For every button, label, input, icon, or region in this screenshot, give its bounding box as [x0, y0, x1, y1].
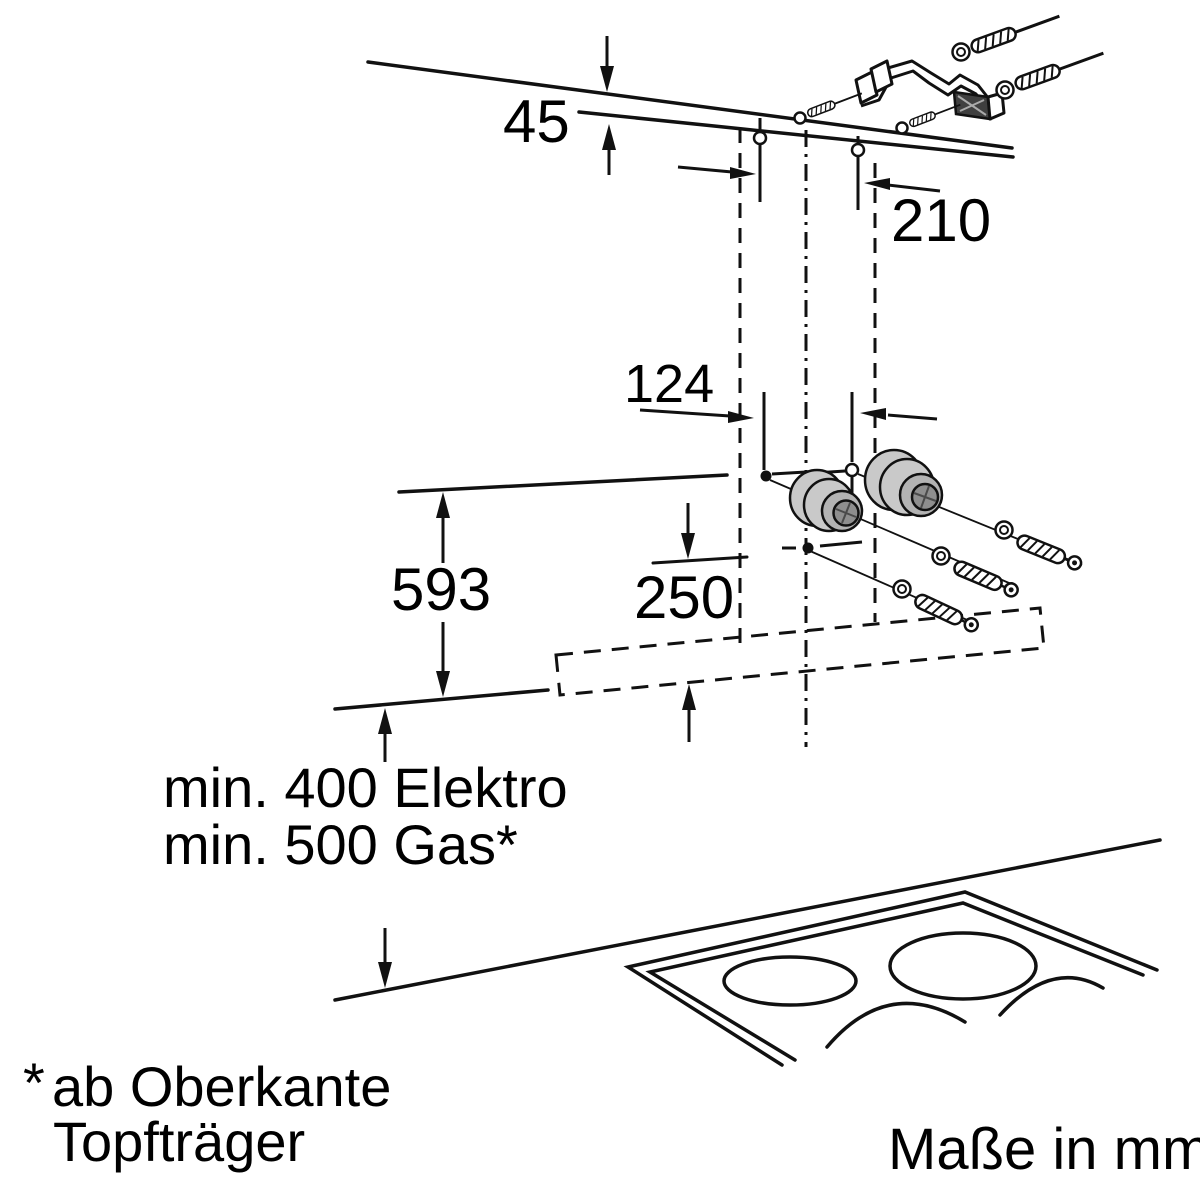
fasteners-lower — [894, 522, 1084, 634]
dim-210-label: 210 — [891, 191, 991, 251]
clearance-electric-label: min. 400 Elektro — [163, 760, 568, 816]
clearance-gas-label: min. 500 Gas* — [163, 817, 518, 873]
mounting-bracket-icon — [856, 61, 1004, 119]
chimney-guide-lines — [740, 128, 875, 747]
cooktop-icon — [628, 892, 1157, 1065]
units-note: Maße in mm — [888, 1121, 1200, 1179]
dim-45-label: 45 — [503, 92, 570, 152]
dim-124-label: 124 — [624, 357, 714, 411]
spacer-right-icon — [865, 450, 942, 516]
footnote-marker: * — [23, 1055, 45, 1111]
wall-edge-lines — [368, 62, 1013, 157]
footnote-line2: Topfträger — [53, 1114, 305, 1170]
fasteners-top — [795, 10, 1106, 133]
dim-593-label: 593 — [391, 560, 491, 620]
technical-drawing — [0, 0, 1200, 1200]
footnote-line1: ab Oberkante — [52, 1059, 391, 1115]
installation-diagram: 45 210 124 593 250 min. 400 Elektro min.… — [0, 0, 1200, 1200]
dim-250-label: 250 — [634, 568, 734, 628]
dim-45-arrows — [600, 36, 616, 175]
